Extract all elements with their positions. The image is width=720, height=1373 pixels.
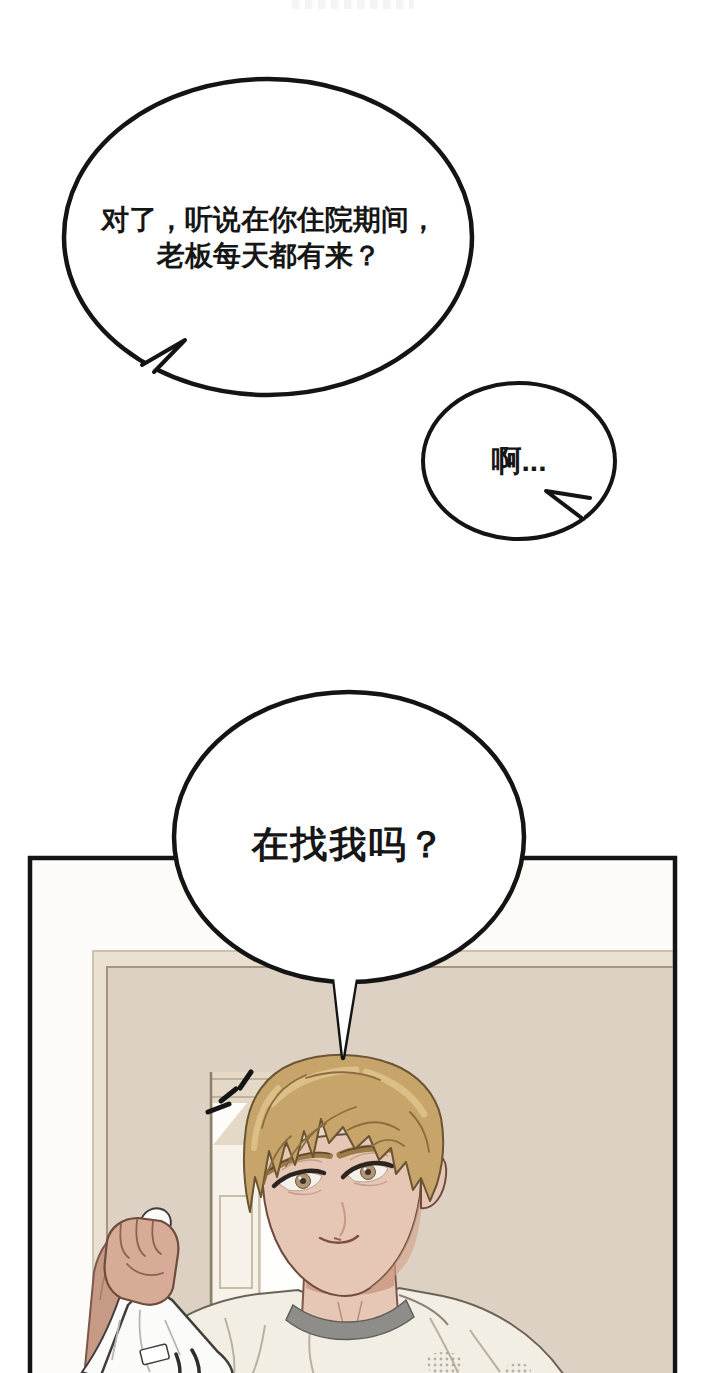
- speech-bubble-3-text: 在找我吗？: [149, 824, 549, 866]
- hand-fist: [105, 1218, 179, 1305]
- bubble-1-line-1: 对了，听说在你住院期间，: [58, 202, 480, 238]
- speech-bubble-1-text: 对了，听说在你住院期间， 老板每天都有来？: [58, 202, 480, 274]
- bubble-1-line-2: 老板每天都有来？: [58, 238, 480, 274]
- speech-bubble-2-text: 啊...: [429, 444, 609, 478]
- halftone-shadow: [424, 1352, 464, 1373]
- comic-page: 对了，听说在你住院期间， 老板每天都有来？ 啊... 在找我吗？: [0, 0, 720, 1373]
